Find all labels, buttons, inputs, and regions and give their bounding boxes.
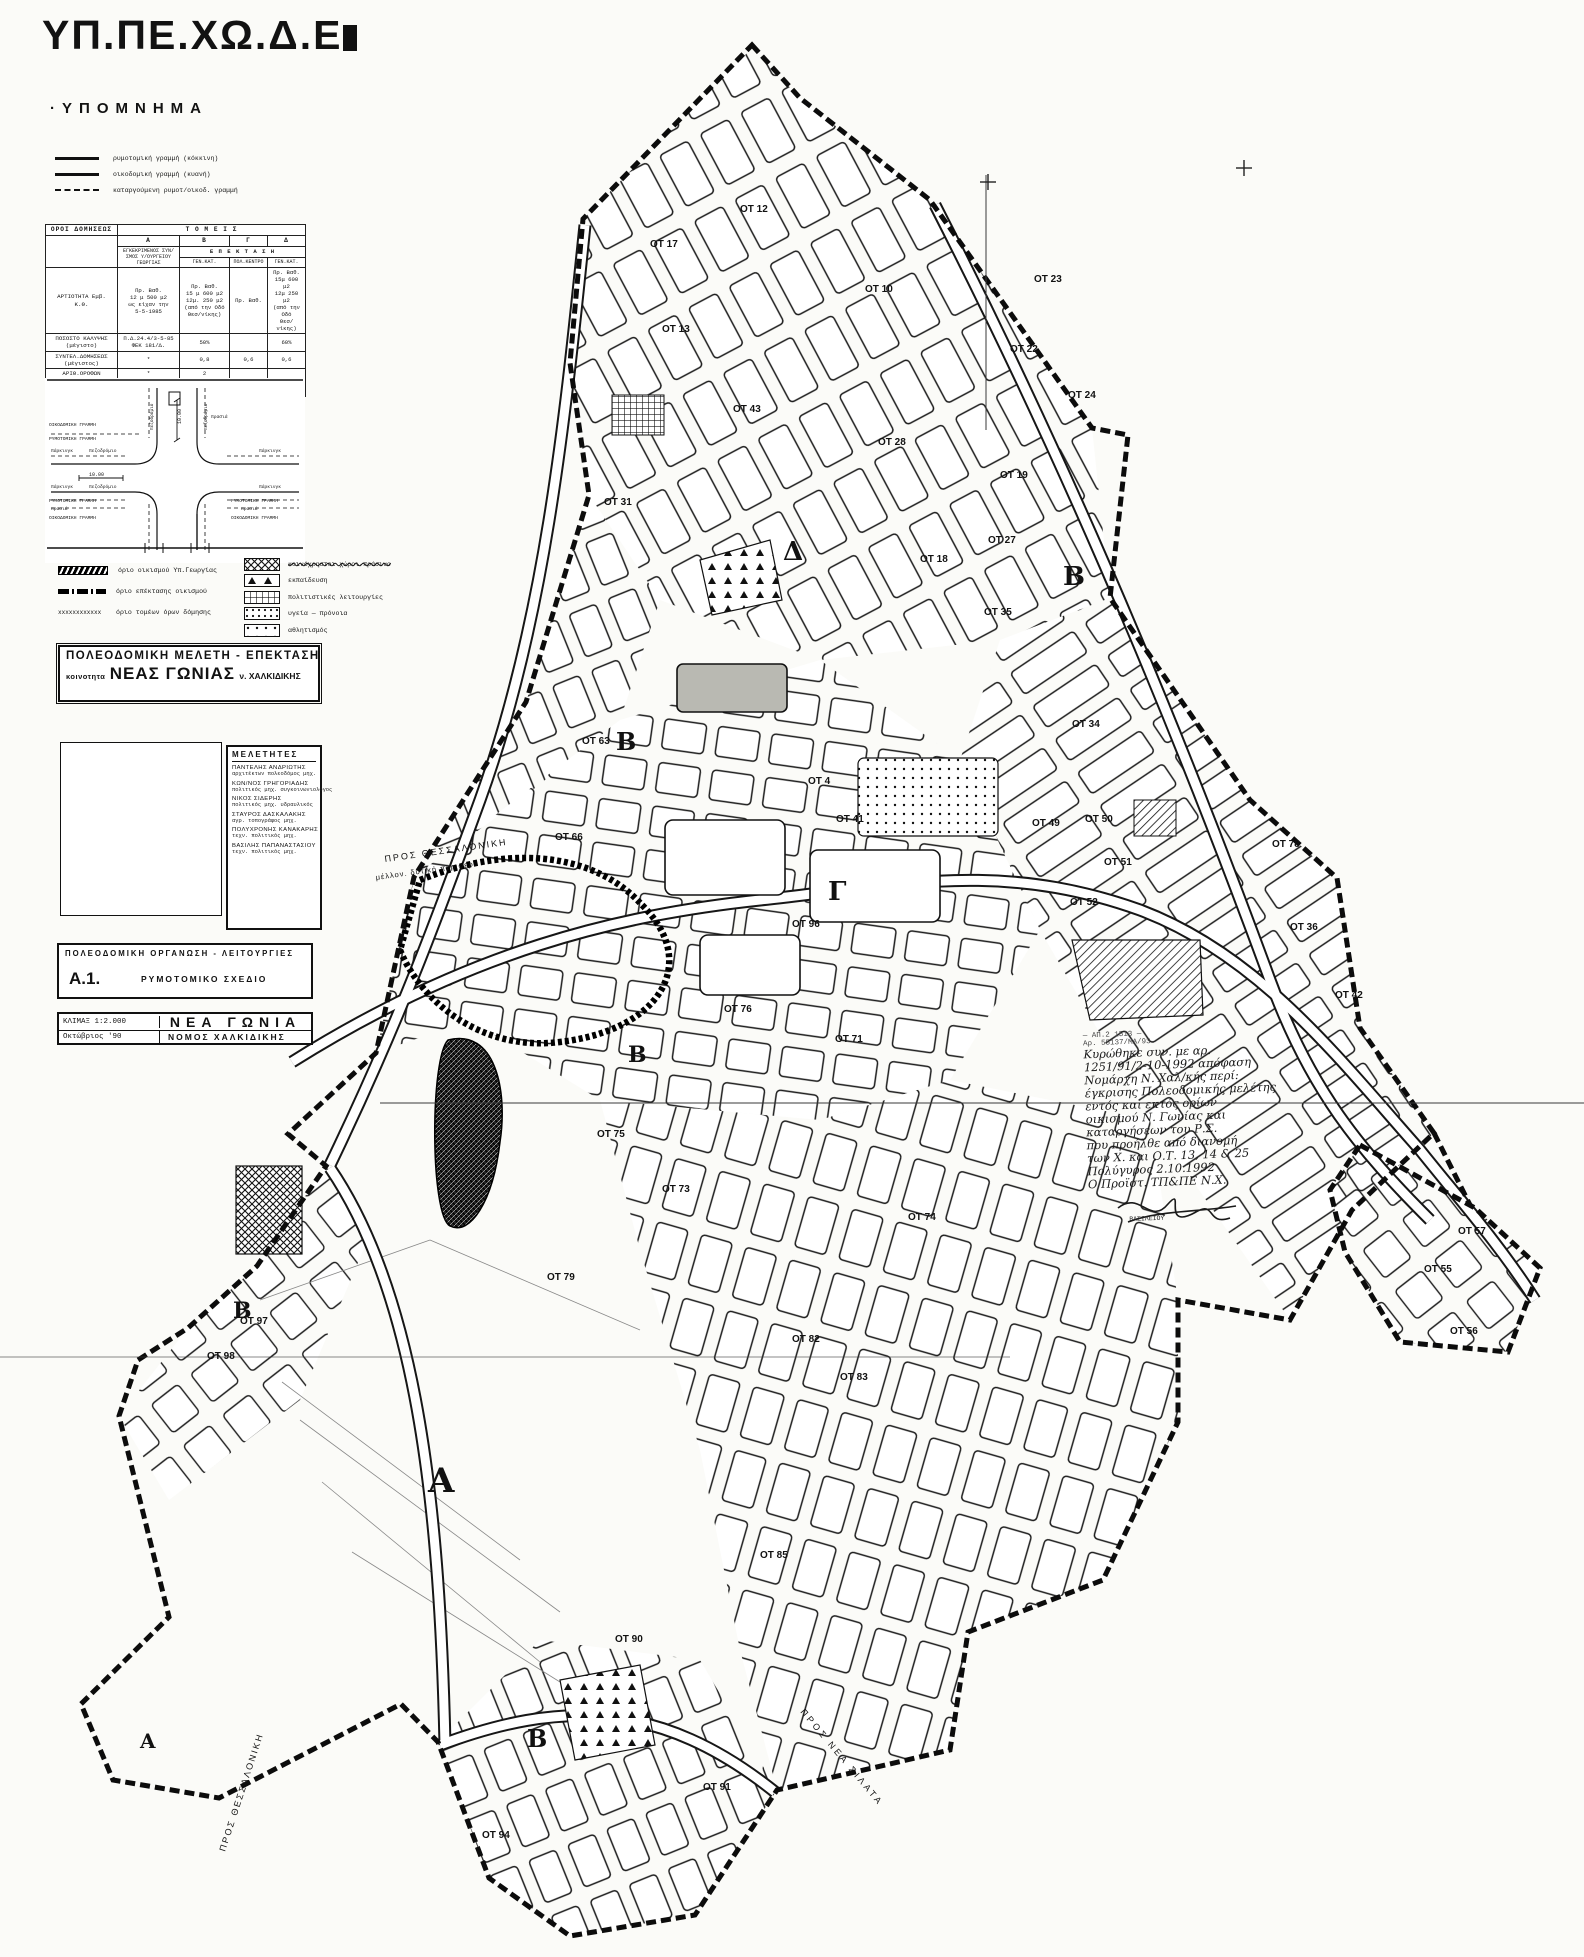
terms-table-cell: Πρ. Βαθ. 15 μ 600 μ2 12μ. 250 μ2 (από τη… bbox=[180, 268, 230, 334]
diagram-label: πεζοδρόμιο bbox=[204, 403, 209, 430]
terms-table-cell: Δ bbox=[268, 235, 306, 246]
diagram-label: ΟΙΚΟΔΟΜΙΚΗ ΓΡΑΜΜΗ bbox=[49, 422, 96, 428]
block-number-label: ΟΤ 50 bbox=[1085, 814, 1113, 825]
block-number-label: ΟΤ 79 bbox=[547, 1272, 575, 1283]
diagram-label: πρασιά bbox=[51, 506, 68, 512]
diagram-label: ΡΥΜΟΤΟΜΙΚΗ ΓΡΑΜΜΗ bbox=[231, 498, 278, 504]
block-number-label: ΟΤ 41 bbox=[836, 814, 864, 825]
terms-table-cell: Α bbox=[118, 235, 180, 246]
town-name: ΝΕΑ ΓΩΝΙΑ bbox=[160, 1014, 311, 1030]
terms-table-cell: ΓΕΝ.ΚΑΤ. bbox=[268, 257, 306, 267]
dashdot-swatch bbox=[58, 589, 106, 594]
legend-line-item: ρυμοτομική γραμμή (κόκκινη) bbox=[55, 150, 305, 166]
sheet-title: ΡΥΜΟΤΟΜΙΚΟ ΣΧΕΔΙΟ bbox=[141, 974, 267, 984]
terms-table-cell: * bbox=[118, 351, 180, 368]
terms-table-cell: Π.Δ.24.4/3-5-85 ΦΕΚ 181/Δ. bbox=[118, 334, 180, 351]
organisation-line: ΠΟΛΕΟΔΟΜΙΚΗ ΟΡΓΑΝΩΣΗ - ΛΕΙΤΟΥΡΓΙΕΣ bbox=[59, 945, 311, 960]
green-area bbox=[1072, 940, 1203, 1020]
boundary-symbol-label: όριο επέκτασης οικισμού bbox=[116, 588, 207, 595]
legend-line-item: οικοδομική γραμμή (κυανή) bbox=[55, 166, 305, 182]
block-number-label: ΟΤ 66 bbox=[555, 832, 583, 843]
zone-letter-label: Β bbox=[628, 1042, 647, 1068]
zone-letter-label: Β bbox=[1063, 562, 1085, 592]
landuse-symbol-label: πολιτιστικές λειτουργίες bbox=[288, 594, 383, 601]
park-grove bbox=[435, 1038, 502, 1227]
terms-table-cell: ΑΡΤΙΟΤΗΤΑ Εμβ. Κ.Θ. bbox=[46, 268, 118, 334]
block-number-label: ΟΤ 57 bbox=[1458, 1226, 1486, 1237]
block-number-label: ΟΤ 17 bbox=[650, 239, 678, 250]
block-number-label: ΟΤ 63 bbox=[582, 736, 610, 747]
diagram-label: πάρκινγκ bbox=[259, 448, 281, 454]
consultants-box: ΜΕΛΕΤΗΤΕΣ ΠΑΝΤΕΛΗΣ ΑΝΔΡΙΩΤΗΣ αρχιτέκτων … bbox=[226, 745, 322, 930]
diagram-label: 10.00 bbox=[89, 472, 104, 478]
boundary-symbols-legend: όριο οικισμού Υπ.Γεωργίαςόριο επέκτασης … bbox=[58, 560, 217, 623]
block-number-label: ΟΤ 43 bbox=[733, 404, 761, 415]
block-number-label: ΟΤ 36 bbox=[1290, 922, 1318, 933]
terms-table-cell: 0,6 bbox=[268, 351, 306, 368]
ink-smudge bbox=[343, 25, 357, 51]
diagram-label: πάρκινγκ bbox=[51, 484, 73, 490]
consultant-entry: ΝΙΚΟΣ ΣΙΔΕΡΗΣ πολιτικός μηχ. υδραυλικός bbox=[232, 796, 316, 808]
building-terms-table: ΟΡΟΙ ΔΟΜΗΣΕΩΣΤ Ο Μ Ε Ι ΣΑΒΓΔΕΓΚΕΚΡΙΜΕΝΟΣ… bbox=[45, 224, 306, 397]
dotsD-pattern-swatch bbox=[244, 607, 280, 620]
block-number-label: ΟΤ 34 bbox=[1072, 719, 1100, 730]
block-number-label: ΟΤ 18 bbox=[920, 554, 948, 565]
consultant-entry: ΠΑΝΤΕΛΗΣ ΑΝΔΡΙΩΤΗΣ αρχιτέκτων πολεοδόμος… bbox=[232, 765, 316, 777]
terms-table-cell bbox=[230, 334, 268, 351]
consultant-entry: ΒΑΣΙΛΗΣ ΠΑΠΑΝΑΣΤΑΣΙΟΥ τεχν. πολιτικός μη… bbox=[232, 843, 316, 855]
diagram-label: ΟΙΚΟΔΟΜΙΚΗ ΓΡΑΜΜΗ bbox=[231, 515, 278, 521]
block-number-label: ΟΤ 55 bbox=[1424, 1264, 1452, 1275]
sheet-code: Α.1. bbox=[59, 961, 141, 997]
consultant-name: ΚΩΝ/ΝΟΣ ΓΡΗΓΟΡΙΑΔΗΣ bbox=[232, 781, 316, 787]
terms-table-cell: Β bbox=[180, 235, 230, 246]
terms-table-cell: ΠΟΣΟΣΤΟ ΚΑΛΥΨΗΣ (μέγιστο) bbox=[46, 334, 118, 351]
block-number-label: ΟΤ 51 bbox=[1104, 857, 1132, 868]
zone-letter-label: Α bbox=[427, 1461, 455, 1501]
scale-value: ΚΛΙΜΑΞ 1:2.000 bbox=[59, 1016, 160, 1028]
consultant-role: αγρ. τοπογράφος μηχ. bbox=[232, 818, 316, 824]
block-number-label: ΟΤ 10 bbox=[865, 284, 893, 295]
landuse-symbol-item: κοινόχρηστοι χώροι-πράσινο bbox=[244, 556, 391, 573]
block-number-label: ΟΤ 83 bbox=[840, 1372, 868, 1383]
block-number-label: ΟΤ 75 bbox=[597, 1129, 625, 1140]
block-number-label: ΟΤ 35 bbox=[984, 607, 1012, 618]
terms-table-cell: ΟΡΟΙ ΔΟΜΗΣΕΩΣ bbox=[46, 225, 118, 236]
consultant-role: αρχιτέκτων πολεοδόμος μηχ. bbox=[232, 771, 316, 777]
ministry-title-text: ΥΠ.ΠΕ.ΧΩ.Δ.Ε bbox=[42, 12, 343, 58]
zone-letter-label: Β bbox=[616, 727, 636, 756]
line-swatch bbox=[55, 173, 99, 176]
consultant-name: ΒΑΣΙΛΗΣ ΠΑΠΑΝΑΣΤΑΣΙΟΥ bbox=[232, 843, 316, 849]
block-number-label: ΟΤ 74 bbox=[908, 1212, 936, 1223]
boundary-symbol-item: όριο επέκτασης οικισμού bbox=[58, 581, 217, 602]
block-number-label: ΟΤ 42 bbox=[1335, 990, 1363, 1001]
date-value: Οκτώβριος '90 bbox=[59, 1031, 160, 1043]
diagram-label: ΡΥΜΟΤΟΜΙΚΗ ΓΡΑΜΜΗ bbox=[49, 436, 96, 442]
landuse-symbol-item: υγεία — πρόνοια bbox=[244, 606, 391, 623]
block-number-label: ΟΤ 22 bbox=[1010, 344, 1038, 355]
prefecture-name: ΝΟΜΟΣ ΧΑΛΚΙΔΙΚΗΣ bbox=[160, 1032, 311, 1042]
sector-boundary-swatch: xxxxxxxxxxxx bbox=[58, 609, 106, 617]
block-number-label: ΟΤ 31 bbox=[604, 497, 632, 508]
block-number-label: ΟΤ 28 bbox=[878, 437, 906, 448]
diagram-label: πεζοδρόμιο bbox=[150, 403, 155, 430]
study-title-line1: ΠΟΛΕΟΔΟΜΙΚΗ ΜΕΛΕΤΗ - ΕΠΕΚΤΑΣΗ bbox=[66, 650, 312, 662]
handwritten-lines: Κυρώθηκε συν. με αρ.1251/91/2-10-1992 απ… bbox=[1083, 1040, 1338, 1192]
landuse-symbol-label: υγεία — πρόνοια bbox=[288, 610, 347, 617]
landuse-symbol-label: εκπαίδευση bbox=[288, 577, 328, 584]
consultant-role: πολιτικός μηχ. συγκοινωνιολόγος bbox=[232, 787, 316, 793]
prefecture-suffix: ν. ΧΑΛΚΙΔΙΚΗΣ bbox=[239, 671, 300, 681]
terms-table-cell bbox=[46, 235, 118, 268]
ministry-title: ΥΠ.ΠΕ.ΧΩ.Δ.Ε bbox=[42, 12, 357, 59]
terms-table-cell: ΣΥΝΤΕΛ.ΔΟΜΗΣΕΩΣ (μέγιστος) bbox=[46, 351, 118, 368]
line-swatch bbox=[55, 157, 99, 160]
block-number-label: ΟΤ 98 bbox=[207, 1351, 235, 1362]
legend-line-item: καταργούμενη ρυμοτ/οικοδ. γραμμή bbox=[55, 182, 305, 198]
block-number-label: ΟΤ 85 bbox=[760, 1550, 788, 1561]
block-number-label: ΟΤ 4 bbox=[808, 776, 831, 787]
boundary-symbol-label: όριο τομέων όρων δόμησης bbox=[116, 609, 211, 616]
landuse-symbol-label: αθλητισμός bbox=[288, 627, 328, 634]
tris-pattern-swatch bbox=[244, 574, 280, 587]
terms-table-cell: ΓΕΝ.ΚΑΤ. bbox=[180, 257, 230, 267]
block-number-label: ΟΤ 71 bbox=[835, 1034, 863, 1045]
consultant-entry: ΚΩΝ/ΝΟΣ ΓΡΗΓΟΡΙΑΔΗΣ πολιτικός μηχ. συγκο… bbox=[232, 781, 316, 793]
landuse-symbol-label: κοινόχρηστοι χώροι-πράσινο bbox=[288, 561, 391, 568]
consultants-title: ΜΕΛΕΤΗΤΕΣ bbox=[232, 750, 316, 762]
line-label: ρυμοτομική γραμμή (κόκκινη) bbox=[113, 155, 218, 162]
landuse-symbols-legend: κοινόχρηστοι χώροι-πράσινο εκπαίδευση πο… bbox=[244, 556, 391, 639]
diagram-label: ΡΥΜΟΤΟΜΙΚΗ ΓΡΑΜΜΗ bbox=[49, 498, 96, 504]
consultant-entry: ΠΟΛΥΧΡΟΝΗΣ ΚΑΝΑΚΑΡΗΣ τεχν. πολιτικός μηχ… bbox=[232, 827, 316, 839]
signatures-box bbox=[60, 742, 222, 916]
sheet-title-box: ΠΟΛΕΟΔΟΜΙΚΗ ΟΡΓΑΝΩΣΗ - ΛΕΙΤΟΥΡΓΙΕΣ Α.1. … bbox=[57, 943, 313, 999]
landuse-symbol-item: πολιτιστικές λειτουργίες bbox=[244, 589, 391, 606]
terms-table-cell: Τ Ο Μ Ε Ι Σ bbox=[118, 225, 306, 236]
line-swatch bbox=[55, 189, 99, 191]
gridp-pattern-swatch bbox=[244, 591, 280, 604]
terms-table-cell: Πρ. Βαθ. bbox=[230, 268, 268, 334]
legend-title: ·ΥΠΟΜΝΗΜΑ bbox=[50, 100, 208, 117]
block-number-label: ΟΤ 91 bbox=[703, 1782, 731, 1793]
terms-table-cell: 60% bbox=[268, 334, 306, 351]
xhatch-pattern-swatch bbox=[244, 558, 280, 571]
street-cross-section-diagram: ΟΙΚΟΔΟΜΙΚΗ ΓΡΑΜΜΗΡΥΜΟΤΟΜΙΚΗ ΓΡΑΜΜΗπάρκιν… bbox=[45, 378, 305, 563]
landuse-symbol-item: εκπαίδευση bbox=[244, 573, 391, 590]
building-terms-box: ΟΡΟΙ ΔΟΜΗΣΕΩΣΤ Ο Μ Ε Ι ΣΑΒΓΔΕΓΚΕΚΡΙΜΕΝΟΣ… bbox=[45, 224, 306, 397]
consultant-role: τεχν. πολιτικός μηχ. bbox=[232, 849, 316, 855]
block-number-label: ΟΤ 19 bbox=[1000, 470, 1028, 481]
zone-letter-label: Β bbox=[527, 1724, 547, 1753]
diagram-labels: ΟΙΚΟΔΟΜΙΚΗ ΓΡΑΜΜΗΡΥΜΟΤΟΜΙΚΗ ΓΡΑΜΜΗπάρκιν… bbox=[49, 403, 281, 521]
scale-box: ΚΛΙΜΑΞ 1:2.000 ΝΕΑ ΓΩΝΙΑ Οκτώβριος '90 Ν… bbox=[57, 1012, 313, 1045]
consultant-name: ΣΤΑΥΡΟΣ ΔΑΣΚΑΛΑΚΗΣ bbox=[232, 812, 316, 818]
block-number-label: ΟΤ 78 bbox=[1272, 839, 1300, 850]
terms-table-cell: Γ bbox=[230, 235, 268, 246]
community-name: ΝΕΑΣ ΓΩΝΙΑΣ bbox=[110, 664, 235, 683]
terms-table-cell: Ε Π Ε Κ Τ Α Σ Η bbox=[180, 246, 306, 257]
diagram-label: ΟΙΚΟΔΟΜΙΚΗ ΓΡΑΜΜΗ bbox=[49, 515, 96, 521]
study-title-line2: κοινοτητα ΝΕΑΣ ΓΩΝΙΑΣ ν. ΧΑΛΚΙΔΙΚΗΣ bbox=[66, 664, 312, 684]
block-number-label: ΟΤ 56 bbox=[1450, 1326, 1478, 1337]
intersection-diagram: ΟΙΚΟΔΟΜΙΚΗ ΓΡΑΜΜΗΡΥΜΟΤΟΜΙΚΗ ΓΡΑΜΜΗπάρκιν… bbox=[45, 378, 305, 558]
diagram-label: πρασιά bbox=[211, 414, 228, 420]
dotsS-pattern-swatch bbox=[244, 624, 280, 637]
consultants-list: ΠΑΝΤΕΛΗΣ ΑΝΔΡΙΩΤΗΣ αρχιτέκτων πολεοδόμος… bbox=[232, 765, 316, 855]
diagram-label: πρασιά bbox=[241, 506, 258, 512]
terms-table-cell: 0,6 bbox=[230, 351, 268, 368]
community-prefix: κοινοτητα bbox=[66, 672, 105, 681]
line-label: οικοδομική γραμμή (κυανή) bbox=[113, 171, 211, 178]
block-number-label: ΟΤ 52 bbox=[1070, 897, 1098, 908]
diagram-label: πάρκινγκ bbox=[259, 484, 281, 490]
sports-area bbox=[858, 758, 998, 836]
block-number-label: ΟΤ 97 bbox=[240, 1316, 268, 1327]
boundary-symbol-item: xxxxxxxxxxxxόριο τομέων όρων δόμησης bbox=[58, 602, 217, 623]
block-number-label: ΟΤ 23 bbox=[1034, 274, 1062, 285]
diagram-label: πεζοδρόμιο bbox=[89, 448, 117, 454]
street-block-texture bbox=[119, 48, 1540, 1936]
scanned-plan-sheet: ΔΒΒΓΒΒΑΒΑΟΤ 12ΟΤ 17ΟΤ 10ΟΤ 13ΟΤ 23ΟΤ 22Ο… bbox=[0, 0, 1584, 1957]
legend-line-types: ρυμοτομική γραμμή (κόκκινη) οικοδομική γ… bbox=[55, 150, 305, 198]
road-direction-label: ΠΡΟΣ ΘΕΣΣΑΛΟΝΙΚΗ bbox=[217, 1732, 265, 1853]
block-number-label: ΟΤ 27 bbox=[988, 535, 1016, 546]
registration-cross bbox=[980, 160, 1252, 190]
block-number-label: ΟΤ 24 bbox=[1068, 390, 1096, 401]
line-label: καταργούμενη ρυμοτ/οικοδ. γραμμή bbox=[113, 187, 238, 194]
consultant-role: τεχν. πολιτικός μηχ. bbox=[232, 833, 316, 839]
diagram-label: πεζοδρόμιο bbox=[89, 484, 117, 490]
terms-table-cell: ΠΟΛ.ΚΕΝΤΡΟ bbox=[230, 257, 268, 267]
block-number-label: ΟΤ 12 bbox=[740, 204, 768, 215]
block-number-label: ΟΤ 82 bbox=[792, 1334, 820, 1345]
terms-table-cell: Πρ. Βαθ. 15μ 600 μ2 12μ 250 μ2 (από την … bbox=[268, 268, 306, 334]
terms-table-cell: 0,8 bbox=[180, 351, 230, 368]
block-number-label: ΟΤ 13 bbox=[662, 324, 690, 335]
study-title-box: ΠΟΛΕΟΔΟΜΙΚΗ ΜΕΛΕΤΗ - ΕΠΕΚΤΑΣΗ κοινοτητα … bbox=[58, 645, 320, 702]
zone-letter-label: Γ bbox=[828, 877, 847, 907]
central-square bbox=[677, 664, 787, 712]
landuse-symbol-item: αθλητισμός bbox=[244, 622, 391, 639]
boundary-symbol-label: όριο οικισμού Υπ.Γεωργίας bbox=[118, 567, 217, 574]
diagram-label: πάρκινγκ bbox=[51, 448, 73, 454]
block-number-label: ΟΤ 90 bbox=[615, 1634, 643, 1645]
block-number-label: ΟΤ 73 bbox=[662, 1184, 690, 1195]
block-number-label: ΟΤ 49 bbox=[1032, 818, 1060, 829]
consultant-entry: ΣΤΑΥΡΟΣ ΔΑΣΚΑΛΑΚΗΣ αγρ. τοπογράφος μηχ. bbox=[232, 812, 316, 824]
boundary-symbol-item: όριο οικισμού Υπ.Γεωργίας bbox=[58, 560, 217, 581]
consultant-role: πολιτικός μηχ. υδραυλικός bbox=[232, 802, 316, 808]
zone-letter-label: Α bbox=[139, 1729, 156, 1753]
hatch-swatch bbox=[58, 566, 108, 575]
approval-annotation: — ΑΠ.2 1513 —Αρ. 55137/ΜΑ/93 Κυρώθηκε συ… bbox=[1083, 1024, 1340, 1225]
block-number-label: ΟΤ 94 bbox=[482, 1830, 510, 1841]
terms-table-cell: 50% bbox=[180, 334, 230, 351]
block-number-label: ΟΤ 96 bbox=[792, 919, 820, 930]
zone-letter-label: Δ bbox=[783, 537, 803, 567]
terms-table-cell: ΕΓΚΕΚΡΙΜΕΝΟΣ ΣΥΝ/ΣΜΟΣ Υ/ΟΥΡΓΕΙΟΥ ΓΕΩΡΓΙΑ… bbox=[118, 246, 180, 268]
block-number-label: ΟΤ 76 bbox=[724, 1004, 752, 1015]
terms-table-cell: Πρ. Βαθ. 12 μ 500 μ2 ως είχαν την 5-5-19… bbox=[118, 268, 180, 334]
diagram-label: 10.00 bbox=[177, 409, 183, 424]
